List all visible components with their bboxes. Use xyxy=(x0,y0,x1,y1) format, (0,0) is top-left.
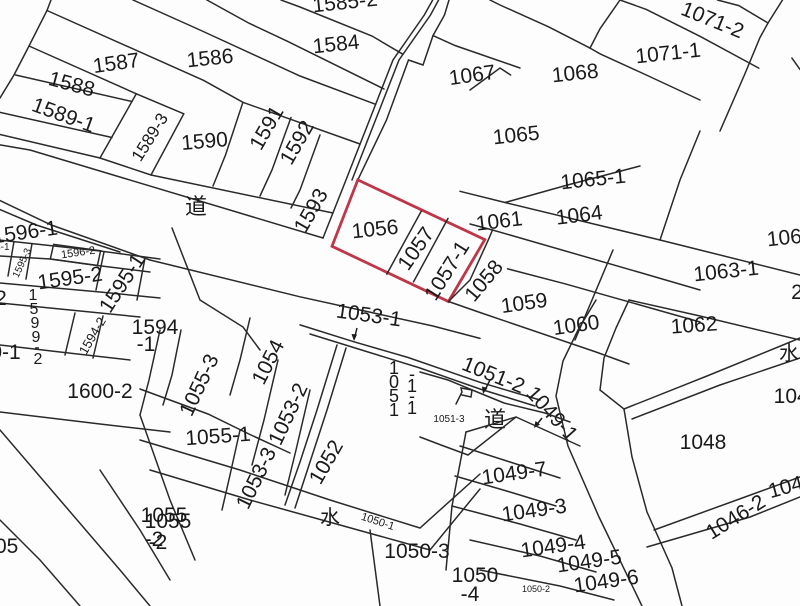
svg-text:1590: 1590 xyxy=(180,128,229,155)
svg-text:-1: -1 xyxy=(137,333,156,356)
svg-text:2: 2 xyxy=(34,351,43,368)
svg-text:2: 2 xyxy=(0,287,7,310)
svg-text:1584: 1584 xyxy=(312,31,361,59)
svg-text:-4: -4 xyxy=(461,583,480,606)
svg-text:1600-1: 1600-1 xyxy=(0,341,21,364)
svg-text:1: 1 xyxy=(389,400,399,420)
svg-text:1068: 1068 xyxy=(551,60,600,88)
svg-text:1050-2: 1050-2 xyxy=(522,584,550,594)
svg-text:1598-1: 1598-1 xyxy=(0,242,10,253)
svg-text:1600-2: 1600-2 xyxy=(67,380,132,403)
svg-text:1048: 1048 xyxy=(680,431,727,454)
svg-text:1055: 1055 xyxy=(145,510,192,533)
svg-text:1055-1: 1055-1 xyxy=(185,423,252,451)
svg-text:道: 道 xyxy=(185,194,207,219)
svg-text:1046: 1046 xyxy=(774,385,800,408)
svg-text:水: 水 xyxy=(320,506,340,529)
svg-text:1056: 1056 xyxy=(351,216,400,244)
svg-text:-2: -2 xyxy=(149,531,168,554)
svg-text:1066: 1066 xyxy=(766,224,800,252)
svg-text:1051-3: 1051-3 xyxy=(433,414,465,425)
svg-text:1062: 1062 xyxy=(670,312,718,338)
svg-text:1586: 1586 xyxy=(186,45,235,73)
svg-text:1065: 1065 xyxy=(492,122,541,150)
svg-text:1: 1 xyxy=(407,398,417,418)
svg-text:水: 水 xyxy=(779,342,799,365)
svg-text:2: 2 xyxy=(791,281,800,304)
svg-text:1050-3: 1050-3 xyxy=(384,540,449,563)
svg-text:1605: 1605 xyxy=(0,535,18,558)
